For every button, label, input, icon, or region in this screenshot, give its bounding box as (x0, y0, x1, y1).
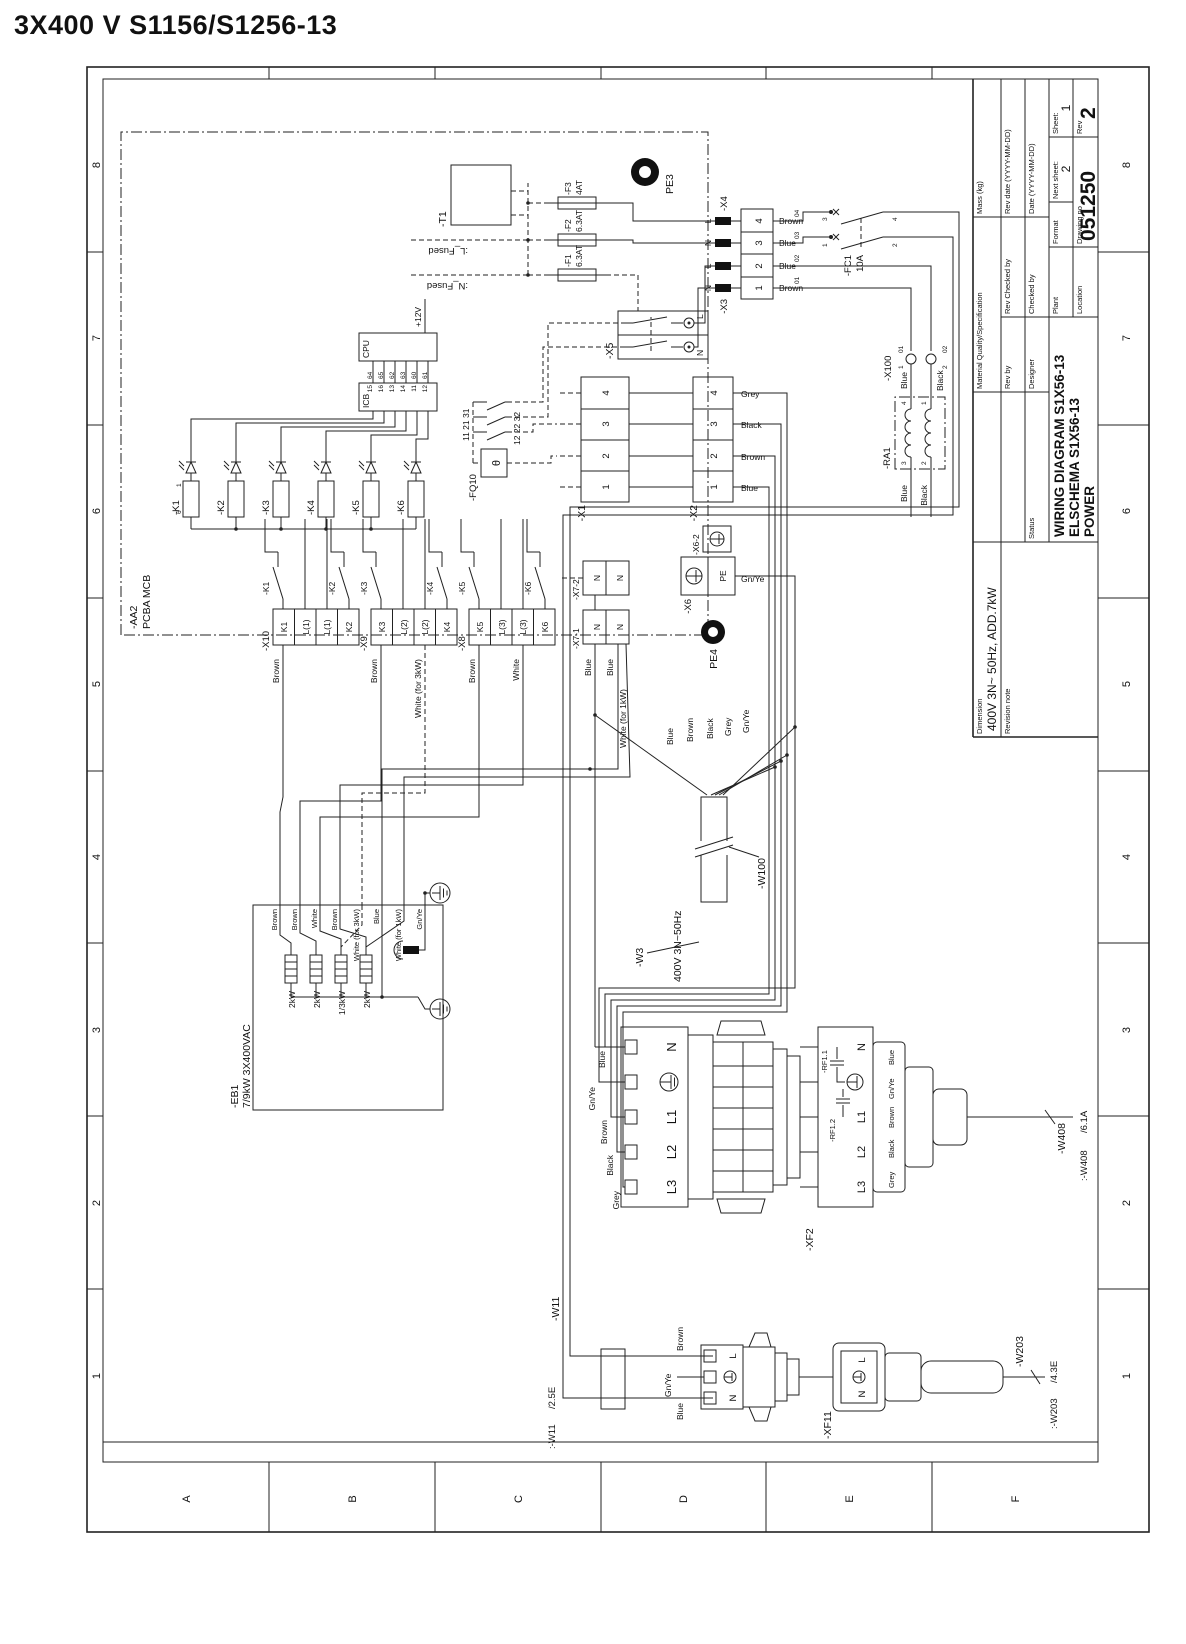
eb1-heater: -EB1 7/9kW 3X400VAC 2kW 2kW 1/3kW 2kW (229, 883, 450, 1110)
mass-label: Mass (kg) (975, 181, 984, 214)
w11-zone: /2.5E (547, 1387, 558, 1409)
zone-row-f: F (1010, 1495, 1022, 1502)
eb1-in-white1kw: White (for 1kW) (394, 909, 403, 962)
zone-col-7-top: 7 (91, 335, 103, 341)
ra1-pin-4: 4 (901, 401, 908, 405)
xf2-label: -XF2 (804, 1228, 816, 1251)
eb1-in-white: White (310, 909, 319, 928)
cpu-label: CPU (361, 340, 371, 358)
cpu-pin-63: 63 (400, 371, 407, 379)
zone-col-4-top: 4 (91, 854, 103, 860)
xf2-pin-l1: L1 (664, 1110, 679, 1124)
xf2-pin-n: N (664, 1042, 679, 1051)
wire-white-1kw: White (for 1kW) (618, 689, 628, 748)
w100-label: -W100 (756, 858, 768, 889)
fc1-rating: 10A (855, 254, 866, 272)
x9-cell-l2a: L(2) (399, 619, 409, 634)
rf1-1-capacitor: -RF1.1 (820, 1047, 845, 1082)
relay-contacts: -K1 -K2 -K3 -K4 -K5 (261, 519, 545, 609)
x8-label: -X8 (457, 636, 468, 651)
xf2-earth-pin (660, 1073, 678, 1091)
cpu-pin-62: 62 (389, 371, 396, 379)
xf11-plug: N L -W203 :-W203 /4.3E (833, 1336, 1060, 1429)
dimension-value: 400V 3N~ 50Hz, ADD.7kW (985, 587, 999, 731)
eb1-el2-kw: 2kW (312, 991, 322, 1008)
xf11-wire-brown: Brown (675, 1327, 685, 1351)
page: 3X400 V S1156/S1256-13 1 2 (0, 0, 1186, 1644)
drawing-title-line1: WIRING DIAGRAM S1X56-13 (1052, 354, 1067, 537)
fan-black: Black (705, 717, 715, 739)
plug-wire-grey: Grey (887, 1171, 896, 1188)
xf2-wire-brown: Brown (599, 1120, 609, 1144)
x1-pin-1: 1 (601, 484, 612, 489)
eb1-in-gnye: Gn/Ye (415, 909, 424, 930)
mains-rating: 400V 3N~50Hz (672, 910, 684, 982)
x2-pin-2: 2 (709, 453, 720, 458)
eb1-in-brown2: Brown (290, 909, 299, 930)
zone-row-d: D (678, 1495, 690, 1503)
fan-grey: Grey (723, 717, 733, 736)
w408-ref: :-W408 (1079, 1150, 1090, 1181)
title-block: Dimension 400V 3N~ 50Hz, ADD.7kW Revisio… (973, 79, 1100, 737)
x7-1-n-bottom: N (615, 624, 625, 630)
fan-blue: Blue (665, 728, 675, 745)
l-fused-net: :L_Fused (428, 245, 468, 256)
aa2-sublabel: PCBA MCB (141, 575, 153, 629)
schematic-sheet: 1 2 3 4 5 6 7 8 1 2 3 4 5 6 7 8 A B C D … (73, 57, 1163, 1557)
cpu-pin-64: 64 (367, 371, 374, 379)
x100-pin-2: 2 (942, 365, 949, 369)
contact-k6-label: -K6 (523, 582, 533, 596)
x10-label: -X10 (261, 631, 272, 651)
x2-pin-4: 4 (709, 390, 720, 395)
rf1-1-label: -RF1.1 (820, 1050, 829, 1073)
fq10-label: -FQ10 (468, 474, 479, 501)
xf11-label: -XF11 (822, 1411, 834, 1439)
x4-label: -X4 (719, 196, 730, 211)
drawing-title-line2: ELSCHEMA S1X56-13 (1067, 397, 1082, 537)
xf2-pin-l3: L3 (664, 1180, 679, 1194)
icb-pin-12: 12 (422, 385, 429, 393)
xf2-wire-black: Black (605, 1154, 615, 1176)
x6-pe-cell: PE (718, 570, 728, 582)
plug-ref-03: 03 (794, 231, 801, 239)
w203-zone: /4.3E (1049, 1361, 1060, 1383)
x8-cell-l3b: L(3) (518, 619, 528, 634)
eb1-label: -EB1 (229, 1084, 241, 1108)
mains-plug-4pin: 1 2 3 4 Brown Blue Blue Brown 01 02 03 0… (731, 209, 931, 351)
x10-cell-l1b: L(1) (322, 619, 332, 634)
ra1-wire-blue: Blue (899, 485, 909, 502)
fq10-thermostat: θ -FQ10 11 21 31 12 22 32 (461, 323, 625, 501)
wire-blue-2: Blue (605, 659, 615, 676)
xf2-mating-connector: L3 L2 L1 N -RF1.1 -RF1.2 (800, 1027, 873, 1207)
x9-cell-l2b: L(2) (420, 619, 430, 634)
fuse-f2: -F2 6.3AT (548, 210, 606, 246)
zone-col-2-bot: 2 (1121, 1200, 1133, 1206)
xf2-wire-blue: Blue (597, 1051, 607, 1068)
zone-col-5-top: 5 (91, 681, 103, 687)
fan-gnye: Gn/Ye (741, 709, 751, 733)
x7-2-n-top: N (592, 575, 602, 581)
zone-row-c: C (513, 1495, 525, 1503)
x10-cell-k1: K1 (279, 622, 289, 633)
relay-k4-label: -K4 (306, 500, 317, 515)
eb1-elements: 2kW 2kW 1/3kW 2kW (285, 955, 372, 1015)
x3-label: -X3 (719, 299, 730, 314)
theta-symbol: θ (491, 460, 503, 466)
x5-terminal-n: N (695, 350, 705, 356)
xf11-wire-blue: Blue (675, 1403, 685, 1420)
contact-k2: -K2 (327, 519, 349, 609)
zone-col-3-bot: 3 (1121, 1027, 1133, 1033)
x2-wire-blue: Blue (741, 483, 758, 493)
drawing-no-value: 051250 (1077, 171, 1100, 241)
material-label: Material Quality/Specification (975, 292, 984, 389)
zone-col-3-top: 3 (91, 1027, 103, 1033)
zone-col-8-bot: 8 (1121, 162, 1133, 168)
zone-row-a: A (181, 1495, 193, 1503)
plug-ref-02: 02 (794, 254, 801, 262)
relay-k2: -K2 (216, 461, 244, 529)
wire-blue-1: Blue (583, 659, 593, 676)
f2-rating: 6.3AT (574, 210, 584, 232)
t1-label: -T1 (437, 211, 449, 227)
eb1-el3-kw: 1/3kW (337, 991, 347, 1015)
x100-pin-1: 1 (898, 365, 905, 369)
x8-cell-l3a: L(3) (497, 619, 507, 634)
fq10-ref-top: 11 21 31 (461, 408, 471, 441)
eb1-in-blue: Blue (372, 909, 381, 924)
fuse-f3: -F3 4AT (548, 180, 606, 209)
eb1-sublabel: 7/9kW 3X400VAC (241, 1024, 253, 1108)
plug-pin-1: 1 (754, 285, 765, 290)
xf11-housing (743, 1333, 833, 1421)
w203-label: -W203 (1014, 1336, 1026, 1367)
f3-rating: 4AT (574, 180, 584, 195)
zone-col-7-bot: 7 (1121, 335, 1133, 341)
sheet-label: Sheet: (1051, 112, 1060, 134)
relay-k5: -K5 (351, 461, 379, 529)
f3-label: -F3 (563, 182, 573, 195)
x1-pin-2: 2 (601, 453, 612, 458)
plus12v-label: +12V (413, 307, 423, 327)
plug-ref-04: 04 (794, 209, 801, 217)
x5-terminal-l: L (695, 314, 705, 319)
x6-label: -X6 (683, 599, 694, 614)
pe4-label: PE4 (708, 649, 720, 669)
relay-k6-label: -K6 (396, 500, 407, 515)
x100-connector: -X100 1 01 2 02 Blue Black (883, 345, 949, 392)
contact-k5-label: -K5 (457, 582, 467, 596)
xf11-plug-l: L (857, 1357, 868, 1362)
contact-k3-label: -K3 (359, 582, 369, 596)
x6-gnye-wire: Gn/Ye (741, 574, 765, 584)
x2-wire-grey: Grey (741, 389, 760, 399)
zone-col-4-bot: 4 (1121, 854, 1133, 860)
cpu-pin-60: 60 (411, 371, 418, 379)
w408-zone: /6.1A (1079, 1110, 1090, 1133)
fuses: :N_Fused :L_Fused -F1 6.3AT -F2 6.3AT -F… (408, 180, 638, 311)
sheet-value: 1 (1059, 104, 1073, 111)
x9-label: -X9 (359, 636, 370, 651)
relay-k2-label: -K2 (216, 500, 227, 515)
relay-k3: -K3 (261, 461, 289, 529)
terminal-strip-x9: -X9 K3 L(2) L(2) K4 (359, 609, 457, 651)
cpu-pin-61: 61 (422, 371, 429, 379)
x100-wire-black: Black (935, 369, 945, 391)
cpu-icb-module: ICB CPU 15 16 13 14 11 12 64 65 62 63 60… (359, 299, 437, 411)
plug-wire-brown: Brown (887, 1107, 896, 1128)
fc1-term-3: 3 (822, 217, 829, 221)
relay-k5-label: -K5 (351, 500, 362, 515)
date-label: Date (YYYY-MM-DD) (1027, 143, 1036, 214)
contact-k4: -K4 (425, 519, 447, 609)
x2-wire-brown: Brown (741, 452, 765, 462)
status-label: Status (1027, 517, 1036, 539)
contact-k1: -K1 (261, 519, 283, 609)
x1-pin-3: 3 (601, 421, 612, 426)
x8-cell-k6: K6 (540, 622, 550, 633)
w100-mains-cable: 400V 3N~50Hz -W100 Blue Brown Black Grey… (593, 709, 797, 982)
ra1-pin-1: 1 (921, 401, 928, 405)
relay-k1: -K1 1 6 (171, 461, 199, 529)
x7-2-n-bottom: N (615, 575, 625, 581)
x1-connector: -X1 1 2 3 4 (557, 377, 693, 521)
format-label: Format (1051, 219, 1060, 244)
fc1-term-2: 2 (892, 243, 899, 247)
plug-pin-4: 4 (754, 218, 765, 223)
location-label: Location (1075, 286, 1084, 314)
cpu-pin-65: 65 (378, 371, 385, 379)
eb1-in-brown3: Brown (330, 909, 339, 930)
icb-pin-14: 14 (400, 385, 407, 393)
w3-harness: -W3 (634, 942, 699, 967)
f1-rating: 6.3AT (574, 245, 584, 267)
w408-label: -W408 (1056, 1123, 1068, 1154)
rev-date-label: Rev date (YYYY-MM-DD) (1003, 129, 1012, 214)
x6-2-label: -X6-2 (691, 534, 701, 555)
zone-col-1-top: 1 (91, 1373, 103, 1379)
x5-label: -X5 (604, 343, 616, 360)
terminal-strip-x10: -X10 K1 L(1) L(1) K2 (261, 609, 359, 651)
eb1-el4-kw: 2kW (362, 991, 372, 1008)
x7-1-label: -X7-1 (571, 628, 581, 649)
rf-pin-l1: L1 (856, 1111, 868, 1123)
zone-row-e: E (844, 1495, 856, 1502)
fuse-f1: -F1 6.3AT (548, 245, 606, 281)
relay-coils: -K1 1 6 -K2 -K3 -K4 (171, 411, 428, 529)
x7-2-label: -X7-2 (571, 579, 581, 600)
x9-cell-k4: K4 (442, 622, 452, 633)
wire-brown-3: Brown (467, 659, 477, 683)
xf11-assembly: N L Blue Gn/Ye Brown -XF11 N (663, 1327, 1060, 1439)
rev-label: Rev (1075, 120, 1084, 134)
x3-x4-pins: N L N L -X3 -X4 (606, 196, 731, 347)
pe3-label: PE3 (664, 174, 676, 194)
x100-wire-blue: Blue (899, 372, 909, 389)
xf11-plug-n: N (857, 1390, 868, 1397)
drawing-sheet: 1 2 3 4 5 6 7 8 1 2 3 4 5 6 7 8 A B C D … (73, 57, 1163, 1557)
rf1-2-capacitor: -RF1.2 (828, 1089, 850, 1142)
wire-white: White (511, 659, 521, 681)
checked-by-label: Checked by (1027, 274, 1036, 314)
ra1-pin-3: 3 (901, 461, 908, 465)
coil-pin-1: 1 (176, 483, 183, 487)
rev-checked-label: Rev Checked by (1003, 259, 1012, 314)
eb1-el1-kw: 2kW (287, 991, 297, 1008)
xf2-molded-plug: Grey Black Brown Gn/Ye Blue -W408 :-W408… (873, 1042, 1090, 1192)
icb-pin-13: 13 (389, 385, 396, 393)
x100-label: -X100 (883, 356, 894, 381)
plug-pin-2: 2 (754, 263, 765, 268)
wire-brown-1: Brown (271, 659, 281, 683)
w203-ref: :-W203 (1049, 1398, 1060, 1429)
fc1-term-4: 4 (892, 217, 899, 221)
n-fused-net: :N_Fused (427, 280, 468, 291)
revision-note-label: Revision note (1003, 689, 1012, 734)
plant-label: Plant (1051, 296, 1060, 314)
zone-col-6-bot: 6 (1121, 508, 1133, 514)
rf-pin-n: N (856, 1043, 868, 1051)
x2-pin-1: 1 (709, 484, 720, 489)
w3-label: -W3 (634, 948, 646, 967)
transformer-t1: -T1 (437, 165, 528, 275)
plug-ref-01: 01 (794, 276, 801, 284)
x100-ref-02: 02 (942, 345, 949, 353)
contact-k2-label: -K2 (327, 582, 337, 596)
w11-ref: :-W11 (547, 1424, 558, 1449)
relay-k4: -K4 (306, 461, 334, 529)
plug-wire-blue: Blue (887, 1050, 896, 1065)
zone-col-5-bot: 5 (1121, 681, 1133, 687)
icb-pin-16: 16 (378, 385, 385, 393)
contact-k3: -K3 (359, 519, 381, 609)
rf-pin-l3: L3 (856, 1181, 868, 1193)
zone-col-6-top: 6 (91, 508, 103, 514)
terminal-strip-x8: -X8 K5 L(3) L(3) K6 (457, 609, 555, 651)
relay-k3-label: -K3 (261, 500, 272, 515)
fc1-label: -FC1 (843, 255, 854, 276)
ra1-choke: -RA1 4 1 3 2 Blue Black (882, 392, 945, 517)
wire-white-3kw: White (for 3kW) (413, 659, 423, 718)
x7-1-n-top: N (592, 624, 602, 630)
f1-label: -F1 (563, 254, 573, 267)
aa2-label: -AA2 (128, 605, 140, 629)
dimension-label: Dimension (975, 699, 984, 734)
x5-module: -X5 N L (604, 311, 708, 359)
wire-brown-2: Brown (369, 659, 379, 683)
pe4-ground: PE4 (701, 620, 725, 669)
drawing-frame: 1 2 3 4 5 6 7 8 1 2 3 4 5 6 7 8 A B C D … (87, 67, 1149, 1532)
contact-k4-label: -K4 (425, 582, 435, 596)
icb-pin-11: 11 (411, 385, 418, 392)
fc1-term-1: 1 (822, 243, 829, 247)
xf2-wire-grey: Grey (611, 1190, 621, 1209)
relay-k6: -K6 (396, 461, 424, 529)
zone-row-b: B (347, 1495, 359, 1502)
page-title: 3X400 V S1156/S1256-13 (14, 10, 337, 41)
rf-pin-l2: L2 (856, 1146, 868, 1158)
xf11-pin-l: L (728, 1353, 739, 1358)
icb-pin-15: 15 (367, 385, 374, 393)
contact-k5: -K5 (457, 519, 479, 609)
plug-wire-gnye: Gn/Ye (887, 1078, 896, 1099)
xf2-assembly: L3 L2 L1 N Grey Black Brown Gn/Ye Blue (587, 1021, 1090, 1251)
x1-pin-4: 4 (601, 390, 612, 395)
xf2-pin-l2: L2 (664, 1145, 679, 1159)
icb-label: ICB (361, 394, 371, 409)
w11-label: -W11 (550, 1297, 562, 1321)
eb1-in-brown1: Brown (270, 909, 279, 930)
x9-cell-k3: K3 (377, 622, 387, 633)
plug-wire-black: Black (887, 1139, 896, 1158)
coil-pin-6: 6 (176, 510, 183, 514)
f2-label: -F2 (563, 219, 573, 232)
ra1-wire-black: Black (919, 484, 929, 506)
plug-pin-3: 3 (754, 240, 765, 245)
rev-by-label: Rev by (1003, 365, 1012, 389)
xf2-housing (688, 1021, 800, 1213)
contact-k6: -K6 (523, 519, 545, 609)
x100-ref-01: 01 (898, 345, 905, 353)
zone-col-2-top: 2 (91, 1200, 103, 1206)
x8-cell-k5: K5 (475, 622, 485, 633)
ra1-pin-2: 2 (921, 461, 928, 465)
rf1-2-label: -RF1.2 (828, 1119, 837, 1142)
heater-harness-wires: Brown Brown White (for 3kW) Brown White … (271, 644, 630, 905)
zone-col-1-bot: 1 (1121, 1373, 1133, 1379)
x2-wire-black: Black (741, 420, 763, 430)
rev-value: 2 (1077, 107, 1100, 119)
zone-col-8-top: 8 (91, 162, 103, 168)
contact-k1-label: -K1 (261, 582, 271, 596)
designer-label: Designer (1027, 358, 1036, 389)
xf11-wire-gnye: Gn/Ye (663, 1373, 673, 1397)
eb1-in-white3kw: White (for 3kW) (352, 909, 361, 962)
xf2-wire-gnye: Gn/Ye (587, 1087, 597, 1111)
xf11-pin-n: N (728, 1394, 739, 1401)
fan-brown: Brown (685, 718, 695, 742)
drawing-title-line3: POWER (1082, 486, 1097, 537)
ra1-label: -RA1 (882, 447, 893, 469)
x6-terminals: -X6 PE -X6-2 Gn/Ye (599, 526, 795, 1082)
x10-cell-l1a: L(1) (301, 619, 311, 634)
pe3-ground: PE3 (631, 158, 676, 194)
next-sheet-value: 2 (1059, 165, 1073, 172)
x10-cell-k2: K2 (344, 622, 354, 633)
x2-pin-3: 3 (709, 421, 720, 426)
